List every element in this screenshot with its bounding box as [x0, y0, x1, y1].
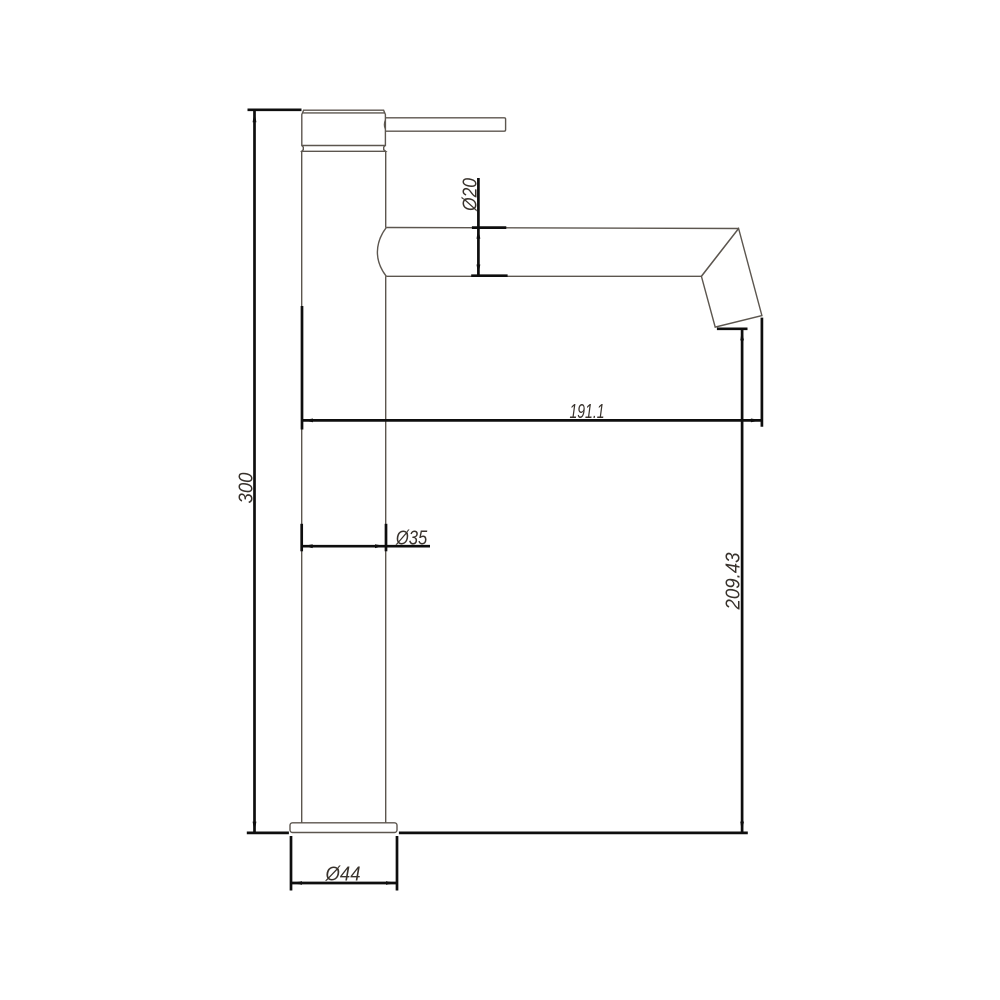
svg-text:Ø20: Ø20 [460, 178, 482, 212]
svg-text:191.1: 191.1 [570, 401, 605, 423]
svg-text:300: 300 [236, 473, 258, 504]
svg-text:209.43: 209.43 [723, 553, 745, 611]
svg-text:Ø35: Ø35 [395, 528, 428, 550]
svg-text:Ø44: Ø44 [325, 864, 361, 886]
